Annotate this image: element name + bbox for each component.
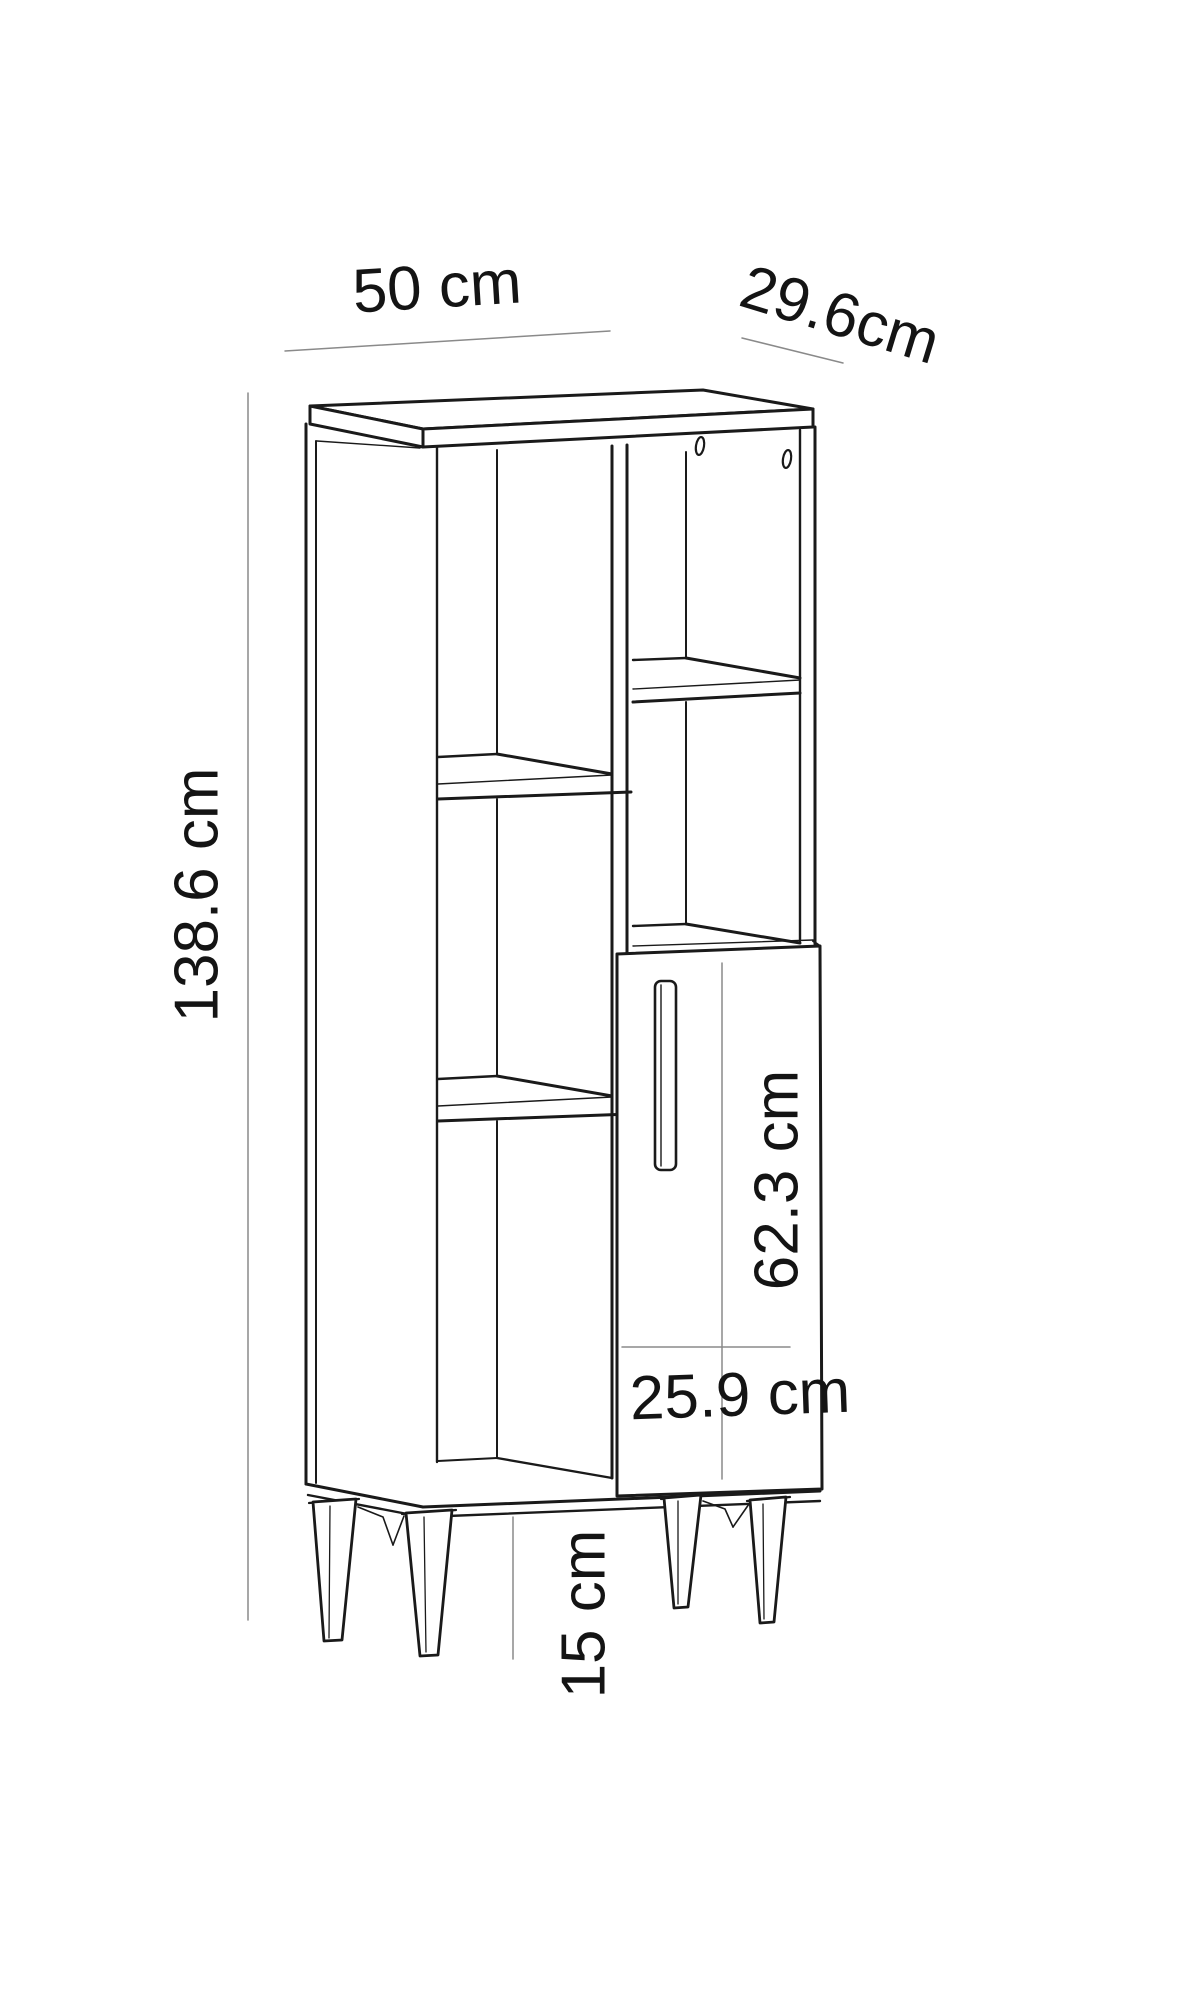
leg-front-left	[402, 1510, 456, 1656]
shelf3-back-edge	[633, 658, 686, 660]
shelf2-back-edge	[438, 1076, 497, 1079]
cabinet-dimension-drawing: 50 cm 29.6cm 138.6 cm 62.3 cm 25.9 cm 15…	[0, 0, 1186, 2000]
door-handle	[655, 981, 676, 1170]
depth-dimension-label: 29.6cm	[733, 252, 948, 377]
left-floor-back-edge	[438, 1458, 497, 1461]
door-width-dimension-label: 25.9 cm	[629, 1357, 852, 1434]
diagram-page: 50 cm 29.6cm 138.6 cm 62.3 cm 25.9 cm 15…	[0, 0, 1186, 2000]
door-height-dimension-label: 62.3 cm	[743, 1070, 812, 1291]
shelf1-back-edge	[438, 754, 497, 757]
shelf1-front-top-edge	[438, 775, 612, 784]
left-column-shelves	[438, 754, 631, 1478]
shelf1-front-bottom-edge	[438, 792, 631, 799]
height-dimension-label: 138.6 cm	[163, 767, 232, 1022]
right-column-shelves	[633, 658, 813, 946]
screw-hole-icon	[695, 436, 706, 455]
shelf2-front-bottom-edge	[438, 1114, 631, 1121]
shelf3-front-top-edge	[633, 680, 800, 689]
door-top-shelf-back-edge	[633, 924, 686, 926]
screw-hole-icon	[782, 449, 793, 468]
shelf1-top-diagonal	[497, 754, 612, 774]
leg-back-left	[309, 1499, 404, 1641]
door-top-shelf-diagonal	[686, 924, 800, 943]
door-top-shelf-front-edge	[633, 940, 813, 946]
shelf3-front-bottom-edge	[633, 693, 800, 702]
top-slab	[310, 390, 813, 448]
leg-front-right	[747, 1497, 790, 1623]
leg-back-right	[661, 1495, 749, 1608]
shelf3-top-diagonal	[686, 658, 800, 678]
shelf2-front-top-edge	[438, 1097, 612, 1106]
left-floor-diagonal	[497, 1458, 612, 1478]
leg-height-dimension-label: 15 cm	[550, 1530, 619, 1699]
dimension-labels: 50 cm 29.6cm 138.6 cm 62.3 cm 25.9 cm 15…	[163, 247, 948, 1698]
screw-holes	[695, 436, 793, 468]
width-dimension-line	[285, 331, 610, 351]
shelf2-top-diagonal	[497, 1076, 612, 1096]
width-dimension-label: 50 cm	[351, 247, 524, 326]
